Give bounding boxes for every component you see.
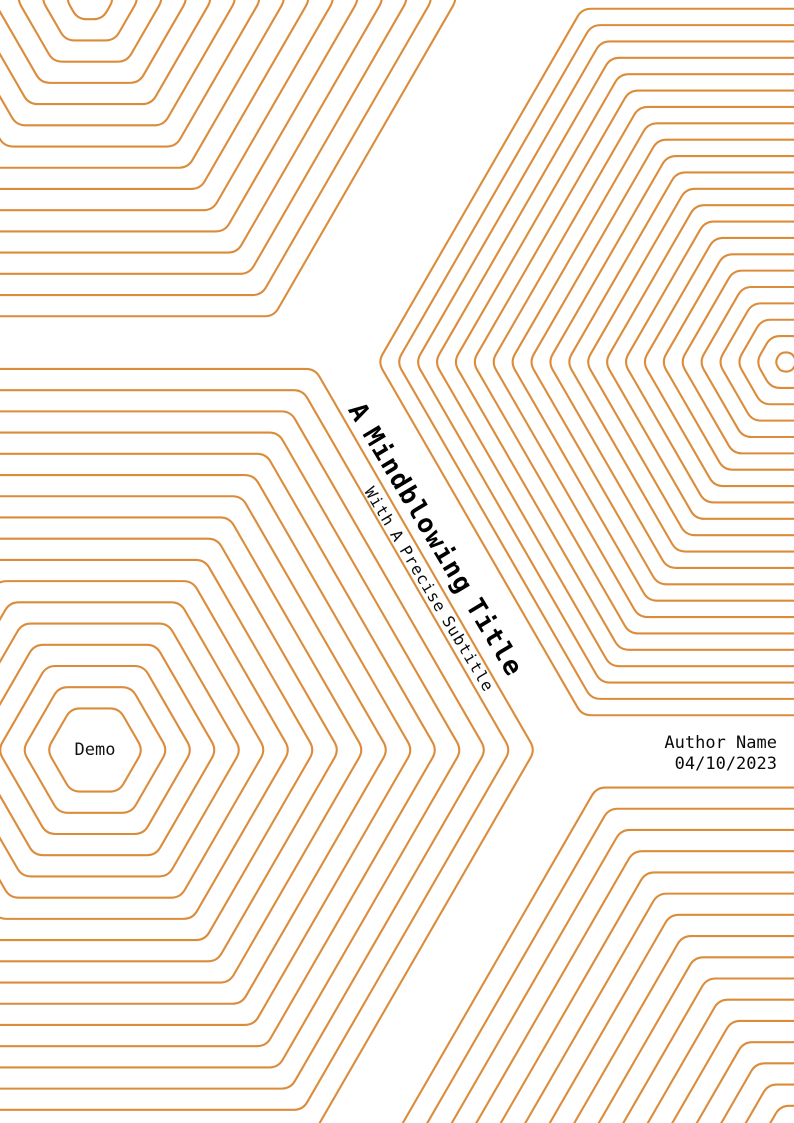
hexagon-ring bbox=[626, 222, 794, 503]
hexagon-nest-1 bbox=[380, 9, 794, 716]
title-page: A Mindblowing Title With A Precise Subti… bbox=[0, 0, 794, 1123]
hexagon-ring bbox=[645, 238, 794, 486]
hexagon-ring bbox=[380, 9, 794, 716]
hexagon-ring bbox=[19, 0, 162, 62]
hexagon-ring bbox=[493, 872, 794, 1123]
hexagon-ring bbox=[739, 320, 794, 405]
hexagon-ring bbox=[0, 0, 357, 231]
hexagon-ring bbox=[0, 0, 455, 316]
hexagon-ring bbox=[399, 25, 794, 699]
hexagon-ring bbox=[0, 0, 308, 189]
hexagon-ring bbox=[0, 475, 410, 1025]
hexagon-ring bbox=[0, 0, 406, 274]
author-date: 04/10/2023 bbox=[664, 754, 777, 775]
hexagon-ring bbox=[567, 936, 794, 1123]
author-name: Author Name bbox=[664, 733, 777, 754]
hexagon-background-pattern bbox=[0, 0, 794, 1123]
hexagon-ring bbox=[518, 894, 794, 1123]
hexagon-ring bbox=[738, 1085, 794, 1123]
hexagon-ring bbox=[0, 624, 239, 877]
hexagon-ring bbox=[68, 0, 113, 19]
hexagon-ring bbox=[542, 915, 794, 1123]
hexagon-ring bbox=[513, 123, 794, 600]
hexagon-ring bbox=[0, 0, 284, 168]
hexagon-ring bbox=[607, 205, 794, 519]
hexagon-ring bbox=[0, 581, 288, 919]
author-block: Author Name 04/10/2023 bbox=[664, 733, 777, 775]
hexagon-ring bbox=[395, 788, 794, 1123]
hexagon-ring bbox=[640, 1000, 794, 1123]
hexagon-ring bbox=[0, 496, 386, 1004]
hexagon-ring bbox=[456, 74, 794, 650]
hexagon-nest-3 bbox=[395, 788, 794, 1123]
hexagon-ring bbox=[0, 560, 312, 940]
hexagon-ring bbox=[0, 602, 263, 897]
demo-label: Demo bbox=[75, 740, 116, 760]
hexagon-ring bbox=[721, 303, 794, 420]
hexagon-ring bbox=[763, 1106, 794, 1123]
hexagon-ring bbox=[532, 140, 794, 585]
hexagon-ring bbox=[0, 433, 459, 1068]
hexagon-nest-0 bbox=[0, 0, 455, 316]
hexagon-ring bbox=[0, 517, 361, 982]
hexagon-ring bbox=[776, 352, 794, 371]
